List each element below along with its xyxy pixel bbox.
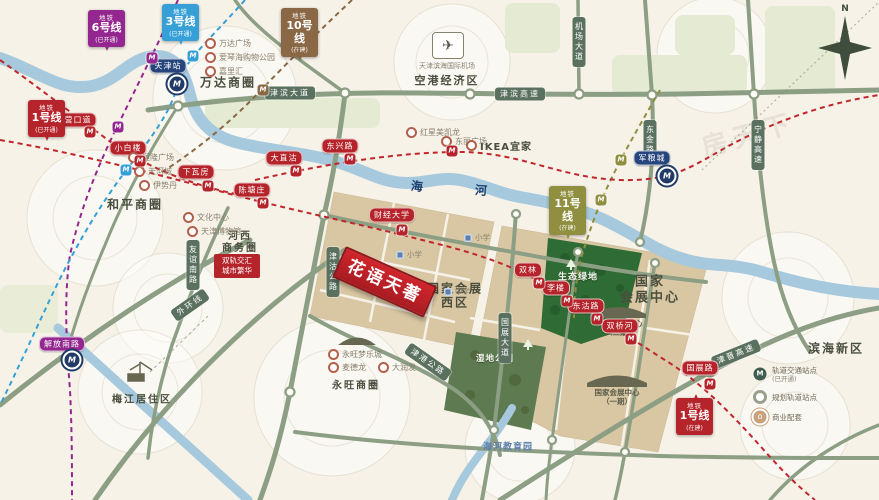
- poi-aeon-mall: 永旺梦乐城: [328, 349, 382, 360]
- station-yingkoudao: 营口道: [60, 113, 97, 128]
- legend-metro-planned-icon: [753, 390, 767, 404]
- station-shuanglin: 双林: [514, 263, 542, 278]
- road-jinbin-expressway: 津滨高速: [495, 88, 545, 101]
- district-heping: 和平商圈: [107, 196, 163, 213]
- map-canvas: 房天下 N 万达商圈 和平商圈 河西 商务圈 梅江居住区 永旺商圈 滨海新区 空…: [0, 0, 879, 500]
- expo-center-label: 国家 会展中心: [620, 274, 680, 305]
- school-icon: [444, 288, 452, 296]
- metro-station-icon: [705, 379, 716, 390]
- road-airport-avenue: 机场大道: [573, 17, 586, 67]
- metro-station-icon: [121, 165, 132, 176]
- metro-station-icon: [562, 296, 573, 307]
- poi-ring-icon: [205, 52, 216, 63]
- metro-station-icon: [447, 146, 458, 157]
- poi-ring-icon: [187, 226, 198, 237]
- station-dongxinglu: 东兴路: [322, 139, 359, 154]
- poi-ikea: IKEA宜家: [466, 138, 532, 153]
- district-konggang: 空港经济区: [415, 72, 480, 88]
- road-youyi-south: 友谊南路: [187, 240, 200, 290]
- poi-metro-market: 麦德龙: [328, 362, 366, 373]
- station-xiawafang: 下瓦房: [178, 165, 215, 180]
- poi-ring-icon: [139, 180, 150, 191]
- district-haihe-edu: 海河教育园: [483, 440, 533, 453]
- airport-icon: ✈: [432, 32, 464, 59]
- station-donggulu: 东沽路: [568, 299, 605, 314]
- poi-aegean-mall: 爱琴海购物公园: [205, 52, 275, 63]
- station-caijingdaxue: 财经大学: [369, 208, 415, 223]
- poi-tianjin-museum: 天津博物馆: [187, 226, 241, 237]
- road-guozhan-avenue: 国展大道: [499, 313, 512, 363]
- metro-station-icon: [258, 85, 269, 96]
- station-jiefangnanlu: 解放南路: [39, 337, 85, 352]
- poi-ring-icon: [406, 127, 417, 138]
- metro-station-icon: [113, 122, 124, 133]
- metro-station-icon: [188, 51, 199, 62]
- metro-station-icon: [291, 166, 302, 177]
- airport-name: 天津滨海国际机场: [419, 61, 475, 71]
- metro-station-icon: [203, 181, 214, 192]
- metro-station-icon: [397, 225, 408, 236]
- metro-badge-line1-extension: 地铁 1号线 (在建): [676, 398, 713, 435]
- district-binhai: 滨海新区: [808, 340, 864, 357]
- metro-station-icon: [626, 334, 637, 345]
- poi-isetan: 伊势丹: [139, 180, 177, 191]
- metro-station-icon: [596, 195, 607, 206]
- station-lilou: 李楼: [542, 281, 570, 296]
- road-jinbin-avenue: 津滨大道: [265, 87, 315, 100]
- project-callout: 双轨交汇 城市繁华: [214, 254, 260, 278]
- legend-metro-built-icon: [754, 368, 767, 381]
- poi-jialihui: 嘉里汇: [205, 66, 243, 77]
- river-label-hai: 海: [410, 177, 424, 195]
- tianjin-station-icon: [168, 75, 187, 94]
- poi-ring-icon: [205, 38, 216, 49]
- station-chentangzhuang: 陈塘庄: [234, 183, 271, 198]
- poi-school-1: 小学: [396, 249, 422, 260]
- legend-item-1: 轨道交通站点 (已开通): [772, 366, 817, 384]
- legend-item-3: 商业配套: [772, 413, 802, 422]
- metro-badge-line10: 地铁 10号线 (在建): [281, 8, 318, 57]
- station-dazhigu: 大直沽: [266, 151, 303, 166]
- legend-item-2: 规划轨道站点: [772, 393, 817, 402]
- poi-culture-center: 文化中心: [183, 212, 229, 223]
- metro-station-icon: [616, 155, 627, 166]
- expo-phase1-label: 国家会展中心 （一期）: [595, 388, 640, 406]
- metro-badge-line1: 地铁 1号线 (已开通): [28, 100, 65, 137]
- school-icon: [464, 234, 472, 242]
- metro-station-icon: [534, 278, 545, 289]
- poi-ring-icon: [205, 66, 216, 77]
- poi-ring-icon: [328, 349, 339, 360]
- poi-school-3: 中学: [444, 286, 470, 297]
- metro-station-icon: [258, 198, 269, 209]
- metro-badge-line3: 地铁 3号线 (已开通): [162, 4, 199, 41]
- poi-ring-icon: [183, 212, 194, 223]
- poi-wanda-plaza: 万达广场: [205, 38, 251, 49]
- poi-ring-icon: [134, 166, 145, 177]
- poi-ring-icon: [466, 140, 477, 151]
- metro-station-icon: [345, 154, 356, 165]
- station-junliangcheng: 军粮城: [634, 151, 671, 166]
- junliangcheng-station-icon: [658, 167, 677, 186]
- district-yongwang: 永旺商圈: [332, 377, 380, 392]
- legend-commerce-icon: [752, 409, 769, 426]
- metro-station-icon: [135, 156, 146, 167]
- metro-badge-line6: 地铁 6号线 (已开通): [88, 10, 125, 47]
- station-shuangqiaohe: 双桥河: [602, 319, 639, 334]
- metro-badge-line11: 地铁 11号线 (在建): [549, 186, 586, 235]
- district-meijiang: 梅江居住区: [112, 391, 172, 406]
- poi-teemall: 天河城: [134, 166, 172, 177]
- school-icon: [396, 251, 404, 259]
- poi-ring-icon: [378, 362, 389, 373]
- jiefangnanlu-station-icon: [63, 351, 82, 370]
- road-ningjing-expressway: 宁静高速: [752, 120, 765, 170]
- compass-north-label: N: [841, 4, 849, 14]
- poi-ring-icon: [328, 362, 339, 373]
- station-guozhanlu: 国展路: [682, 361, 719, 376]
- metro-station-icon: [592, 314, 603, 325]
- metro-station-icon: [147, 53, 158, 64]
- metro-station-icon: [85, 127, 96, 138]
- river-label-he: 河: [474, 181, 487, 199]
- poi-rt-mart: 大润发: [378, 362, 416, 373]
- poi-school-2: 小学: [464, 232, 490, 243]
